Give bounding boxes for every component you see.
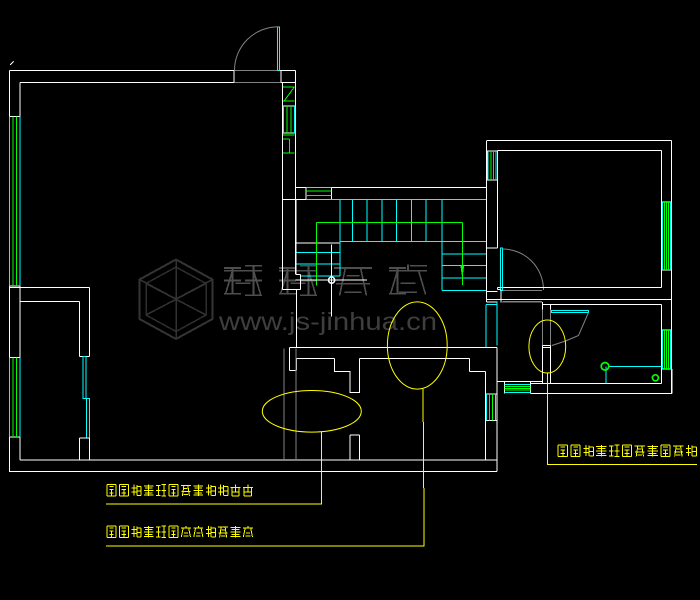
svg-text:www.js-jinhua.cn: www.js-jinhua.cn — [218, 308, 437, 336]
